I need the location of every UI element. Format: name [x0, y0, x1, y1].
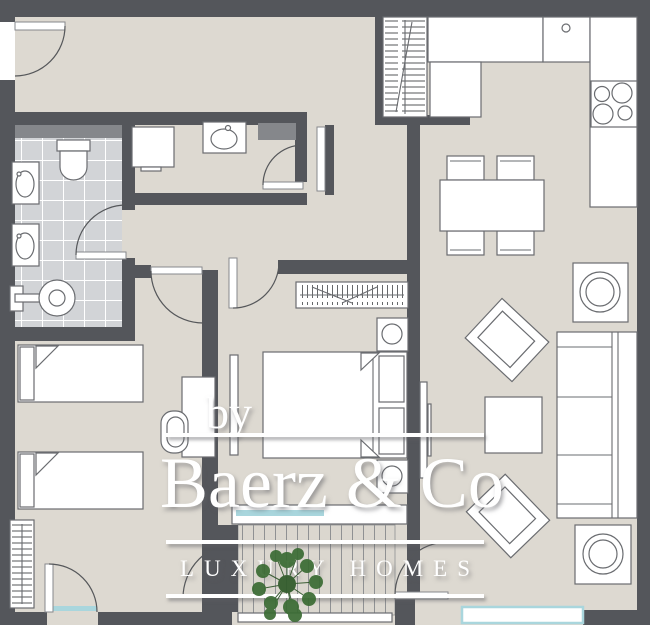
nightstand-1-lamp — [382, 324, 402, 344]
dining-table — [440, 180, 544, 231]
kids-terrace-glass — [47, 606, 97, 611]
dining-chair-2 — [497, 156, 534, 180]
entry-door-leaf — [15, 22, 65, 30]
laundry-door-leaf — [263, 182, 303, 189]
watermark-divider-2 — [166, 540, 484, 544]
kitchen-corner-unit — [430, 62, 481, 117]
wall-laundry-bottom — [135, 193, 307, 205]
wall-top — [0, 0, 650, 17]
burner-3 — [593, 104, 613, 124]
laundry-washbasin-tap — [226, 126, 231, 131]
wall-living-left — [407, 125, 420, 598]
dining-chair-3 — [447, 231, 484, 255]
bathroom-shelf — [15, 125, 122, 138]
watermark-by: by — [206, 386, 252, 439]
appliance-top-drum-inner — [586, 278, 614, 306]
bathroom-door-leaf — [76, 252, 126, 259]
burner-2 — [612, 83, 632, 103]
kids-door-leaf — [151, 267, 202, 274]
single-bed-1-pillow — [20, 347, 34, 400]
floor-plan-drawing — [0, 0, 650, 625]
washbasin-1-tap — [17, 172, 21, 176]
wall-master-top — [278, 260, 407, 274]
burner-4 — [618, 106, 632, 120]
hall-door-leaf — [317, 127, 325, 191]
appliance-bottom-drum-inner — [589, 540, 617, 568]
living-window — [462, 607, 583, 623]
wall-bottom-left-a — [0, 612, 47, 625]
terrace-step — [238, 613, 392, 622]
watermark-divider-1 — [166, 433, 484, 437]
wall-right — [637, 0, 650, 625]
floor-plan: by Baerz & Co LUXURY HOMES — [0, 0, 650, 625]
kitchen-sink-tap — [562, 24, 570, 32]
wall-hall-door-stub — [325, 125, 334, 195]
shower-head-center — [49, 290, 65, 306]
wall-bottom-left-b — [98, 612, 232, 625]
shower-arm — [15, 294, 42, 302]
laundry-washbasin-bowl — [211, 129, 237, 149]
wall-bedroom2-door-jamb — [133, 265, 151, 278]
wall-laundry-right — [295, 125, 307, 182]
wall-bath-bottom — [15, 327, 133, 341]
watermark-tagline: LUXURY HOMES — [160, 556, 490, 582]
burner-1 — [595, 87, 610, 102]
pillow-1 — [379, 356, 404, 402]
entry-wardrobe — [383, 17, 427, 117]
kids-terrace-door-leaf — [45, 564, 53, 612]
laundry-shelf — [258, 123, 296, 140]
sofa — [557, 332, 637, 518]
entry-door-opening — [0, 22, 15, 80]
kitchen-counter-top — [428, 17, 543, 62]
washbasin-2-tap — [17, 234, 21, 238]
dining-chair-1 — [447, 156, 484, 180]
washing-machine-foot — [141, 167, 161, 171]
watermark-divider-3 — [166, 594, 484, 598]
single-bed-2-pillow — [20, 454, 34, 507]
master-door-leaf — [229, 258, 237, 308]
watermark-brand: Baerz & Co — [160, 447, 490, 519]
toilet-bowl — [60, 151, 87, 180]
wall-bottom-right — [583, 610, 650, 625]
wall-terrace-stub — [395, 598, 415, 625]
dining-chair-4 — [497, 231, 534, 255]
washing-machine — [132, 127, 174, 167]
wall-wardrobe-left — [375, 17, 383, 117]
toilet-tank — [57, 140, 90, 151]
